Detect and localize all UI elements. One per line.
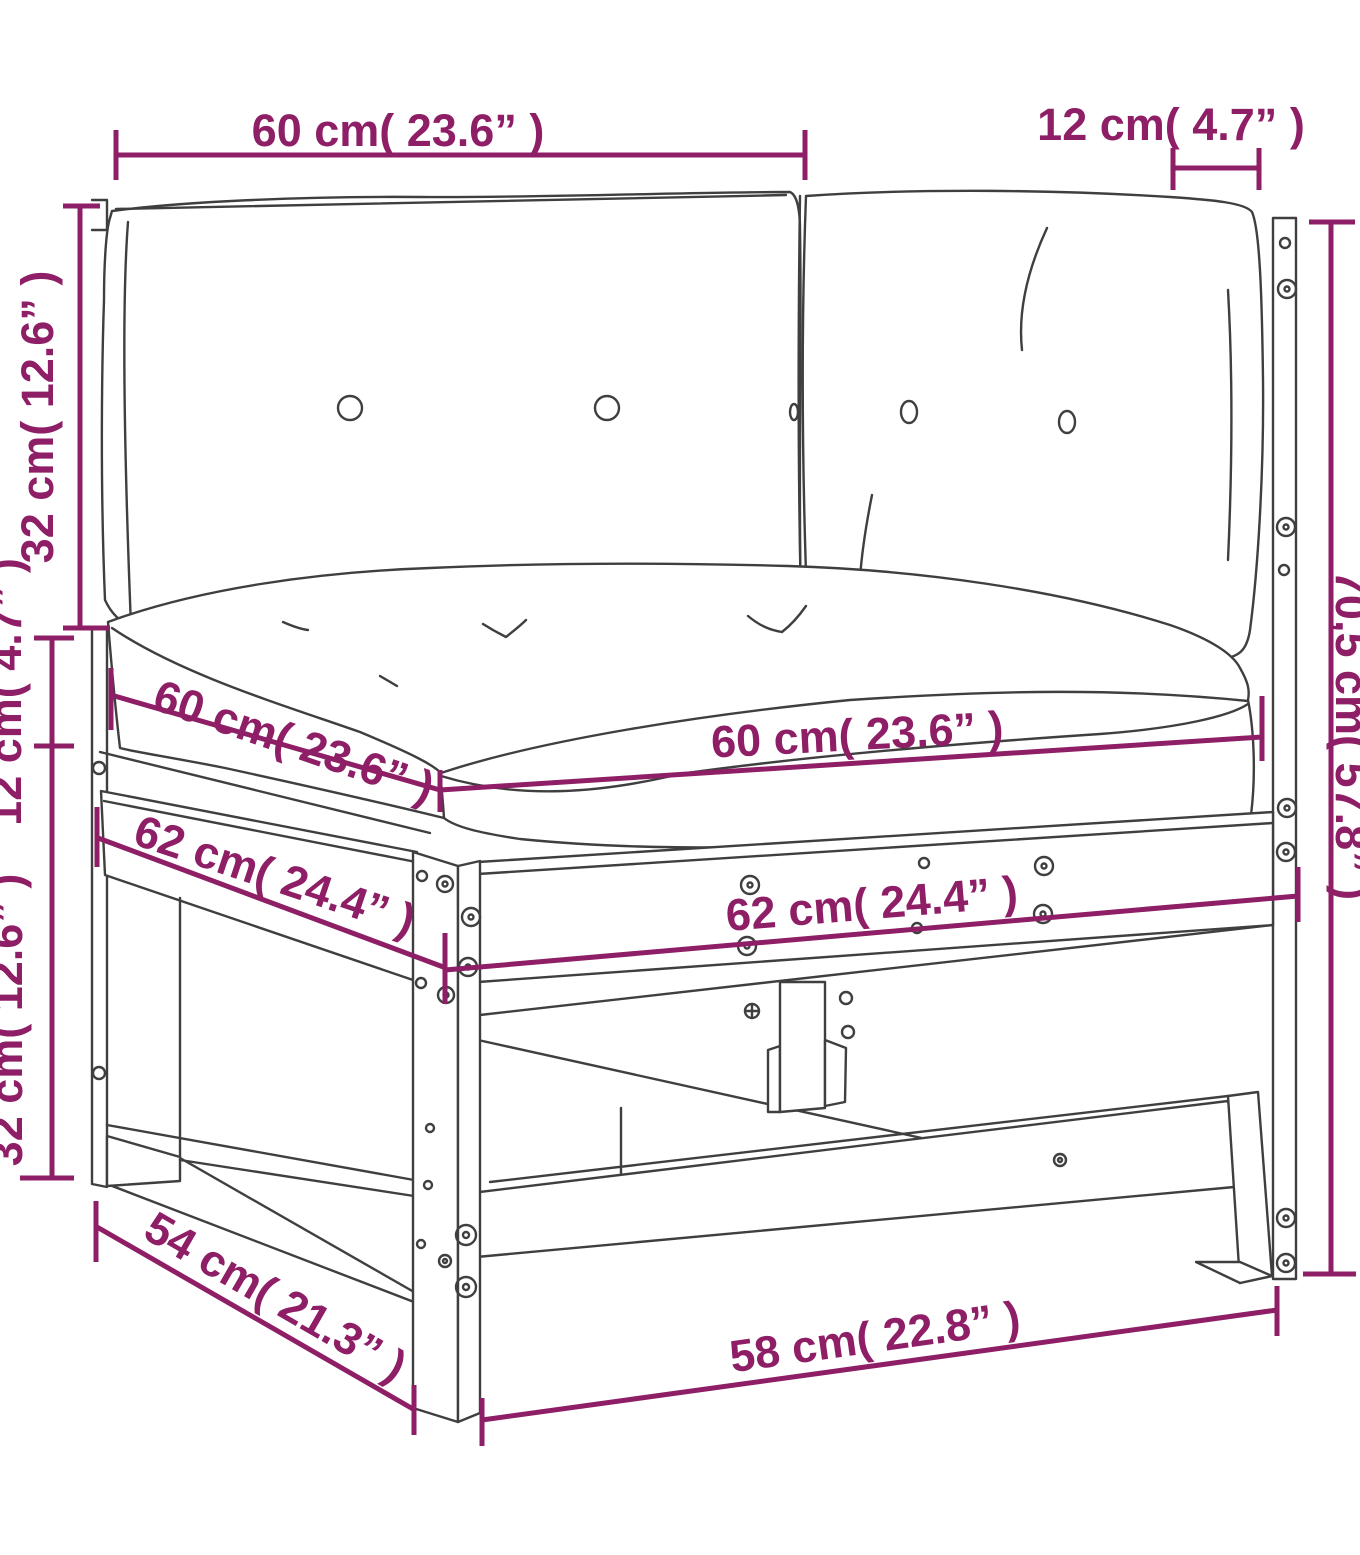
svg-text:12 cm( 4.7” ): 12 cm( 4.7” ) [0, 558, 31, 826]
svg-text:60 cm( 23.6” ): 60 cm( 23.6” ) [252, 105, 545, 156]
svg-text:32 cm( 12.6” ): 32 cm( 12.6” ) [0, 874, 32, 1167]
svg-text:70,5 cm( 57.8” ): 70,5 cm( 57.8” ) [1326, 570, 1360, 900]
svg-text:32 cm( 12.6” ): 32 cm( 12.6” ) [12, 271, 63, 564]
svg-text:12 cm( 4.7” ): 12 cm( 4.7” ) [1037, 99, 1305, 150]
